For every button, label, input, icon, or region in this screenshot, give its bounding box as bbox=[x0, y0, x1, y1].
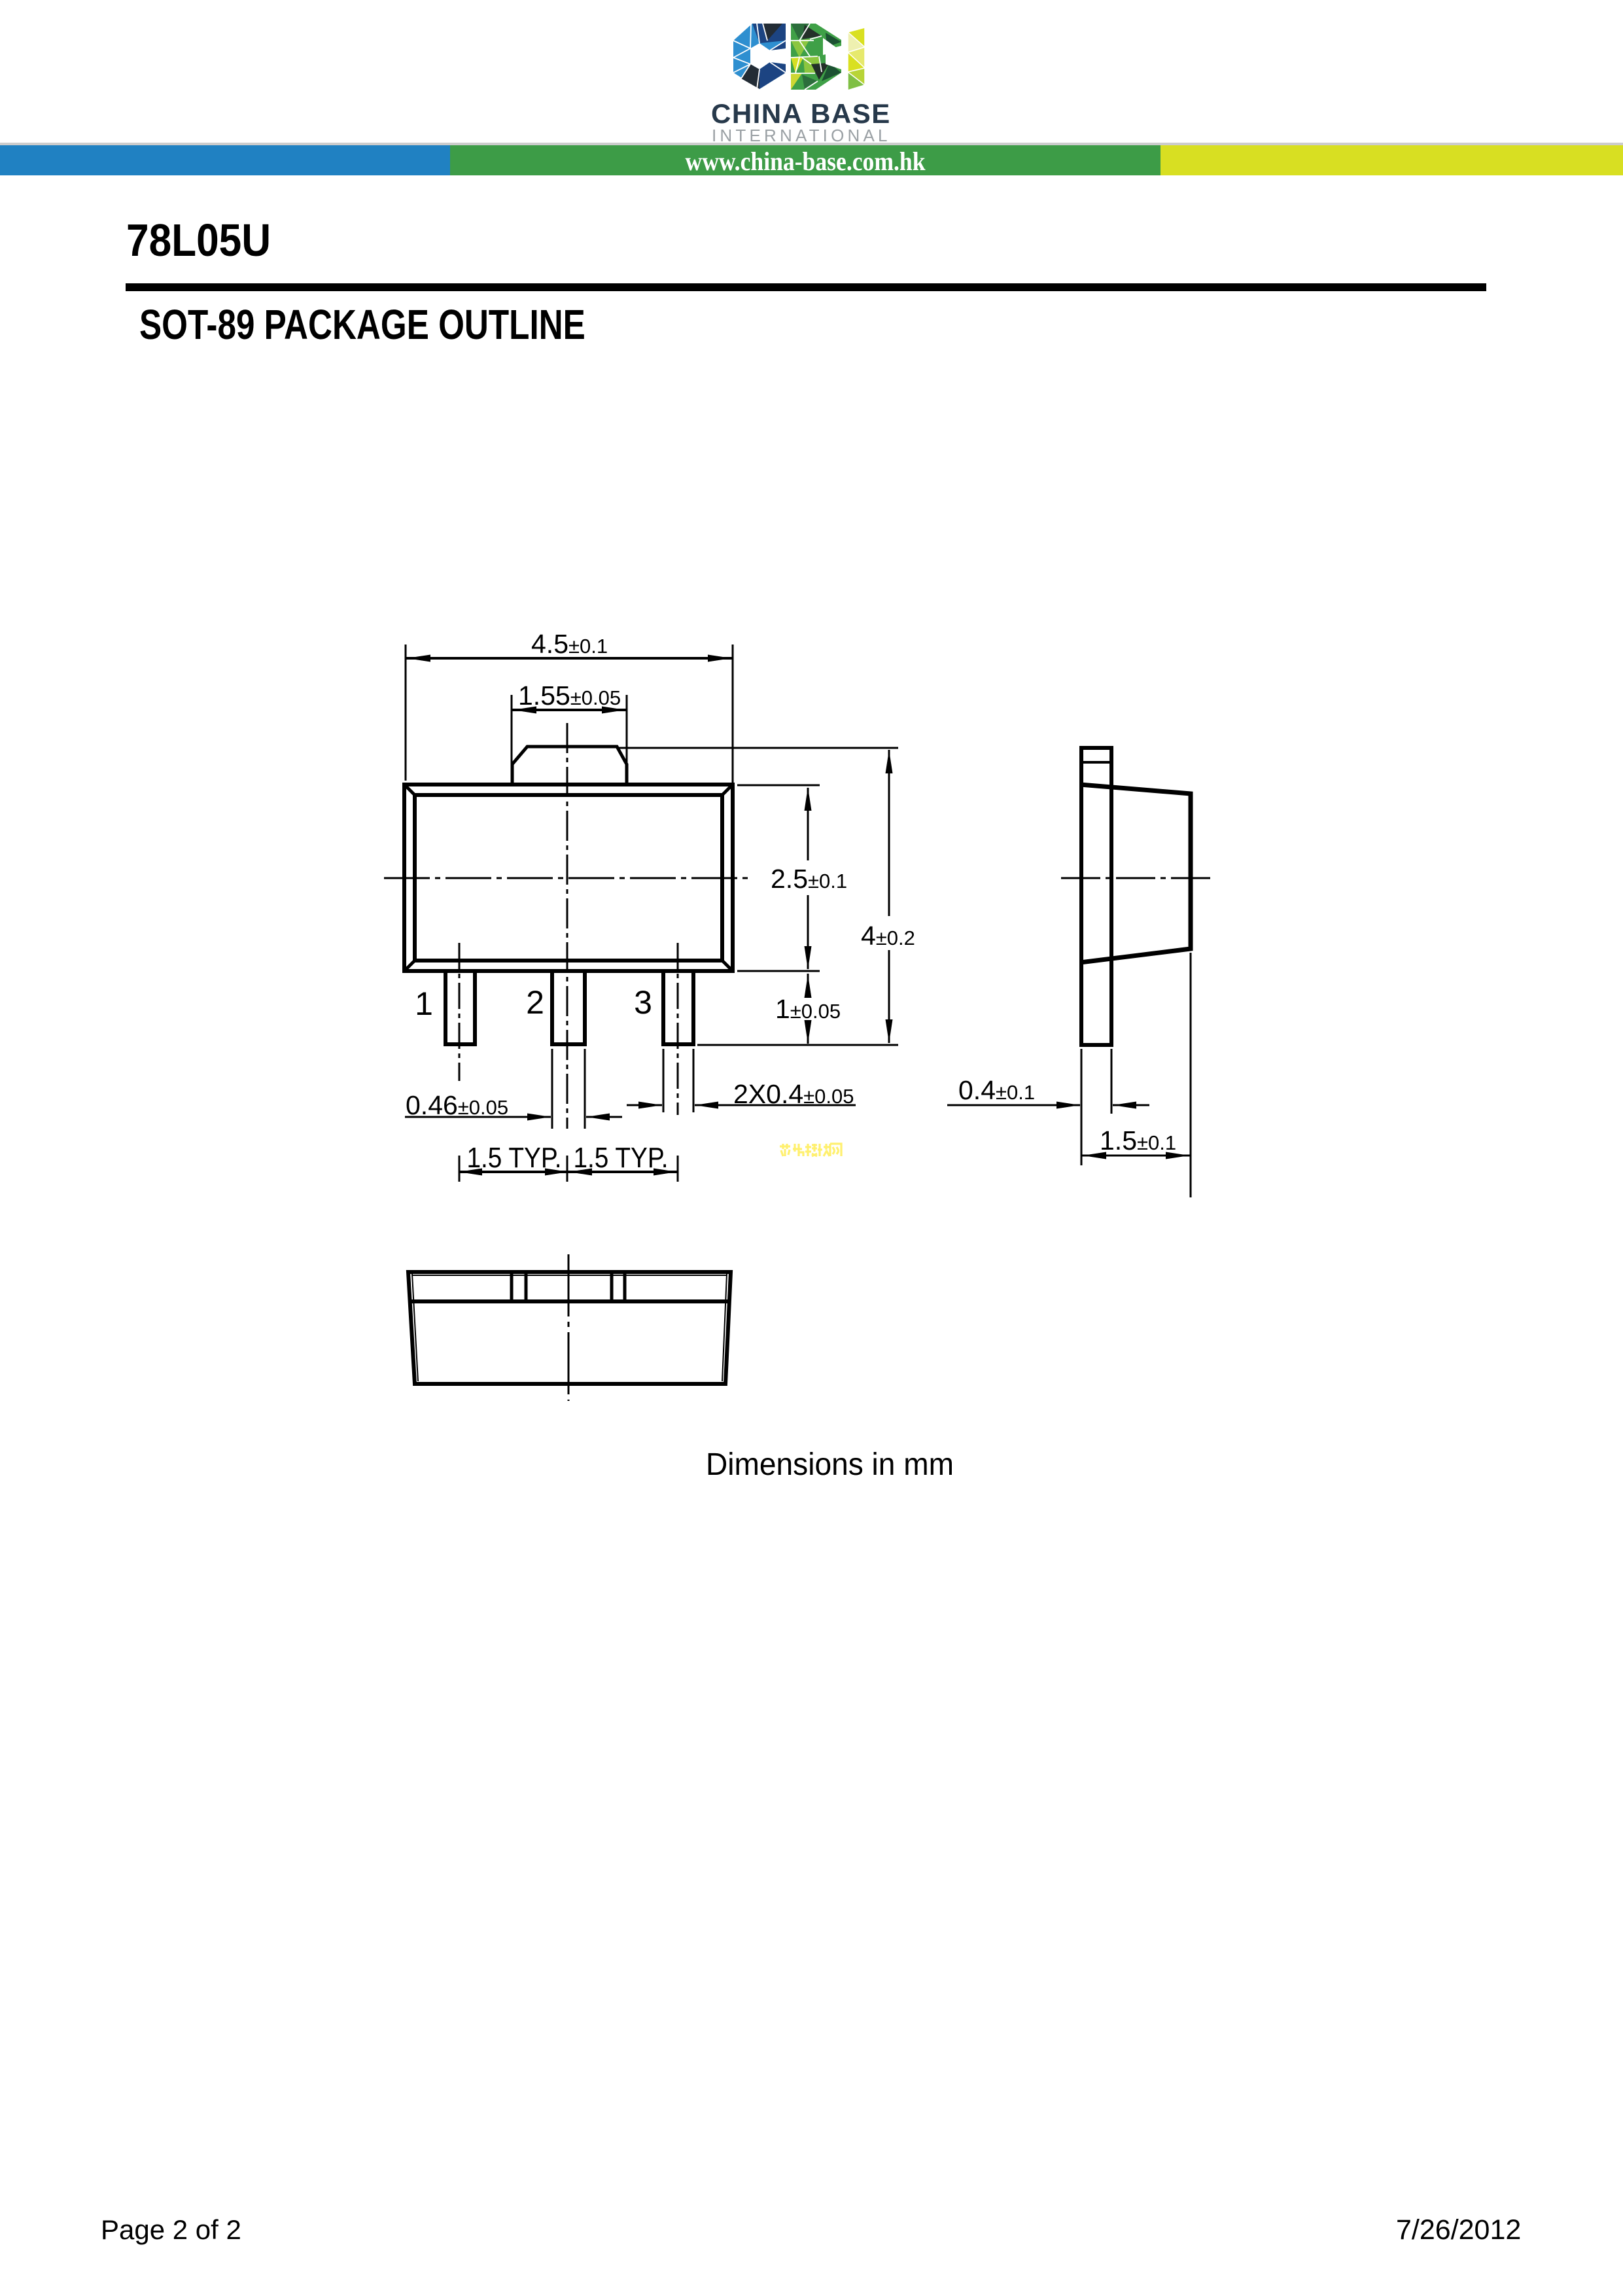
svg-text:2X0.4: 2X0.4 bbox=[733, 1079, 803, 1109]
svg-text:1.5 TYP.: 1.5 TYP. bbox=[467, 1142, 562, 1174]
svg-text:2.5: 2.5 bbox=[771, 864, 808, 894]
svg-text:±0.1: ±0.1 bbox=[808, 870, 847, 892]
svg-text:±0.1: ±0.1 bbox=[1137, 1131, 1176, 1154]
svg-text:±0.05: ±0.05 bbox=[790, 1000, 841, 1023]
svg-text:INTERNATIONAL: INTERNATIONAL bbox=[712, 126, 891, 145]
svg-text:CHINA BASE: CHINA BASE bbox=[711, 98, 891, 129]
svg-text:Dimensions in mm: Dimensions in mm bbox=[706, 1447, 954, 1482]
svg-text:www.china-base.com.hk: www.china-base.com.hk bbox=[686, 147, 926, 176]
svg-text:±0.05: ±0.05 bbox=[458, 1096, 508, 1119]
svg-text:3: 3 bbox=[634, 984, 652, 1021]
svg-text:±0.1: ±0.1 bbox=[996, 1081, 1035, 1104]
svg-text:4: 4 bbox=[861, 921, 876, 951]
svg-text:0.4: 0.4 bbox=[958, 1075, 996, 1105]
svg-text:1.5 TYP.: 1.5 TYP. bbox=[574, 1142, 669, 1174]
svg-text:4.5: 4.5 bbox=[531, 629, 568, 659]
svg-text:±0.05: ±0.05 bbox=[803, 1085, 854, 1108]
svg-text:1: 1 bbox=[415, 985, 433, 1022]
svg-text:±0.05: ±0.05 bbox=[570, 686, 621, 709]
svg-text:±0.1: ±0.1 bbox=[568, 635, 608, 658]
svg-text:0.46: 0.46 bbox=[406, 1090, 458, 1120]
svg-text:2: 2 bbox=[526, 984, 544, 1021]
svg-text:±0.2: ±0.2 bbox=[876, 927, 915, 949]
svg-text:1: 1 bbox=[775, 994, 790, 1024]
svg-text:1.5: 1.5 bbox=[1100, 1125, 1137, 1156]
svg-text:1.55: 1.55 bbox=[518, 680, 570, 711]
